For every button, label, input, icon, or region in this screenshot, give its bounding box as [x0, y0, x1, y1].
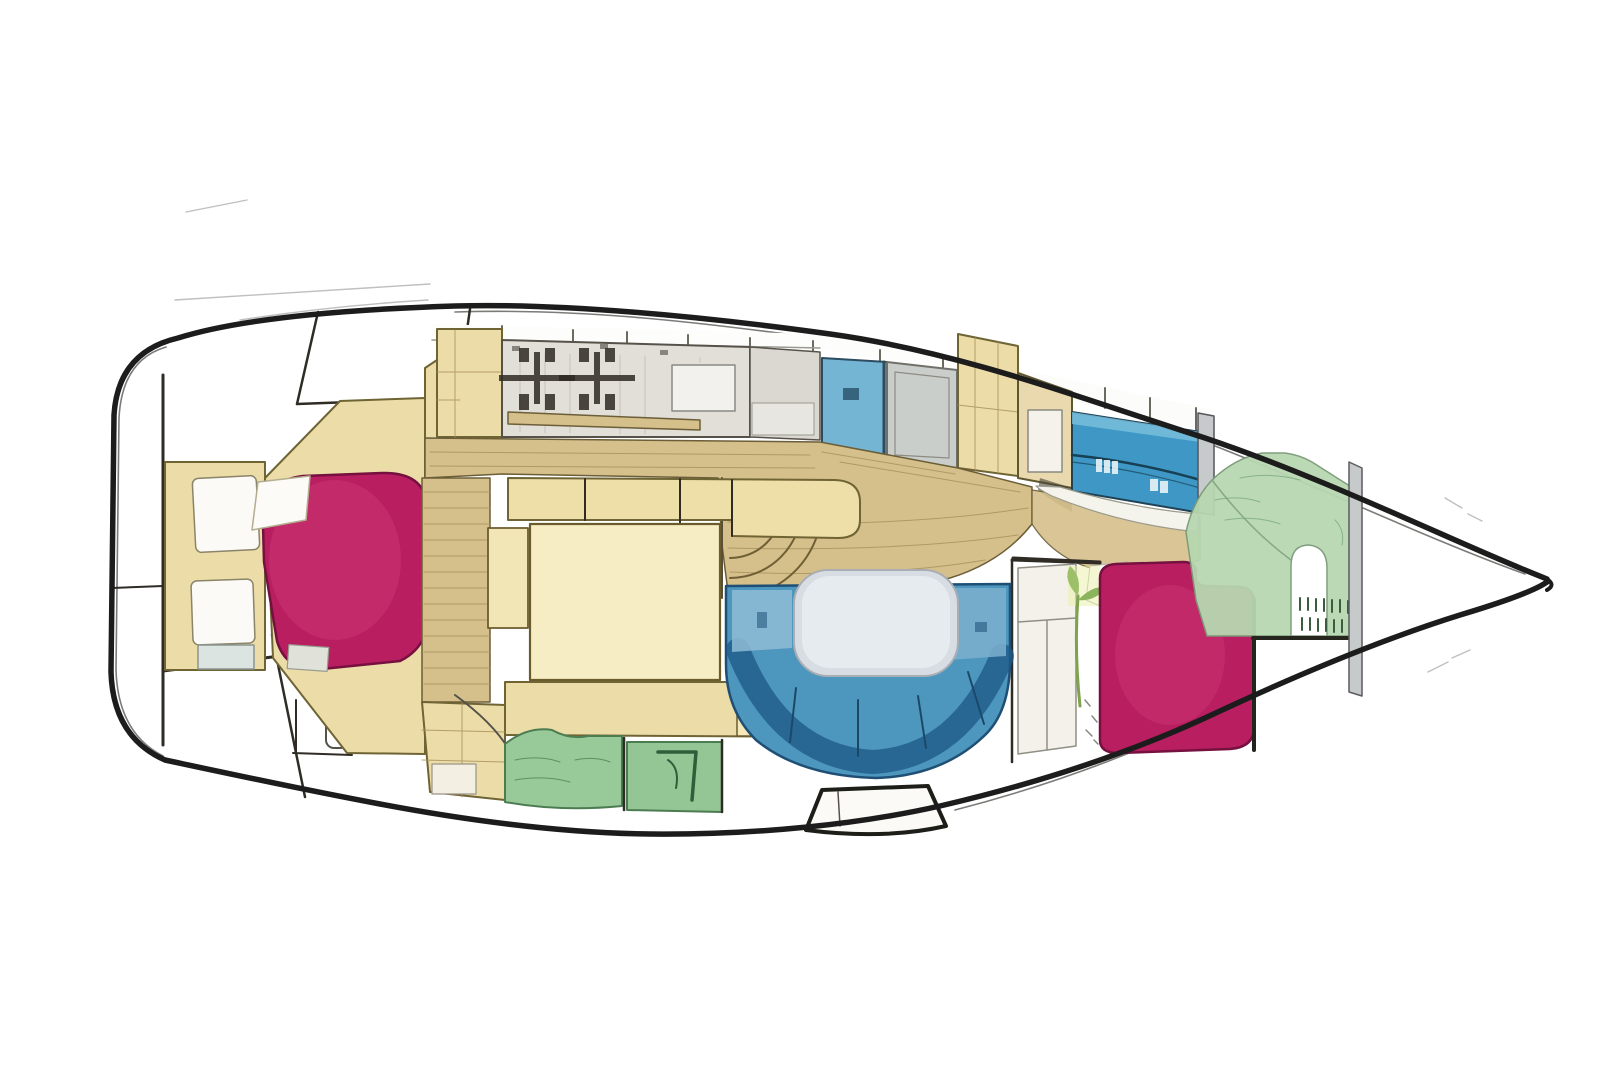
- galley-aft-cabinet: [437, 329, 502, 437]
- aft-shelf-item: [198, 645, 254, 669]
- heads-seat-left: [505, 729, 622, 808]
- cabinet-1: [958, 334, 1018, 476]
- table-block-side-panel: [488, 528, 528, 628]
- aft-shelf-white-2: [191, 579, 255, 645]
- galley-lower-panel: [752, 403, 814, 435]
- settee-glyph-2: [975, 622, 987, 632]
- fridge-panel: [1028, 410, 1062, 472]
- galley-side-sliver: [425, 360, 437, 447]
- table-block-top: [530, 524, 720, 680]
- aft-cabin: [165, 398, 430, 754]
- heads-cabinet-drawer: [432, 764, 476, 794]
- boat-floorplan-canvas: [0, 0, 1600, 1067]
- door-handle-glyph: [843, 388, 859, 400]
- aft-berth-foot-shelf: [287, 645, 329, 672]
- settee-glyph-1: [757, 612, 767, 628]
- salon-table-highlight: [802, 576, 950, 668]
- salon: [726, 570, 1010, 778]
- galley-sink-locker: [672, 365, 735, 411]
- boat-floorplan-svg: [0, 0, 1600, 1067]
- plant-stem: [1076, 596, 1080, 706]
- aft-shelf-white-1: [192, 475, 260, 552]
- floor-speckles: [1085, 700, 1098, 744]
